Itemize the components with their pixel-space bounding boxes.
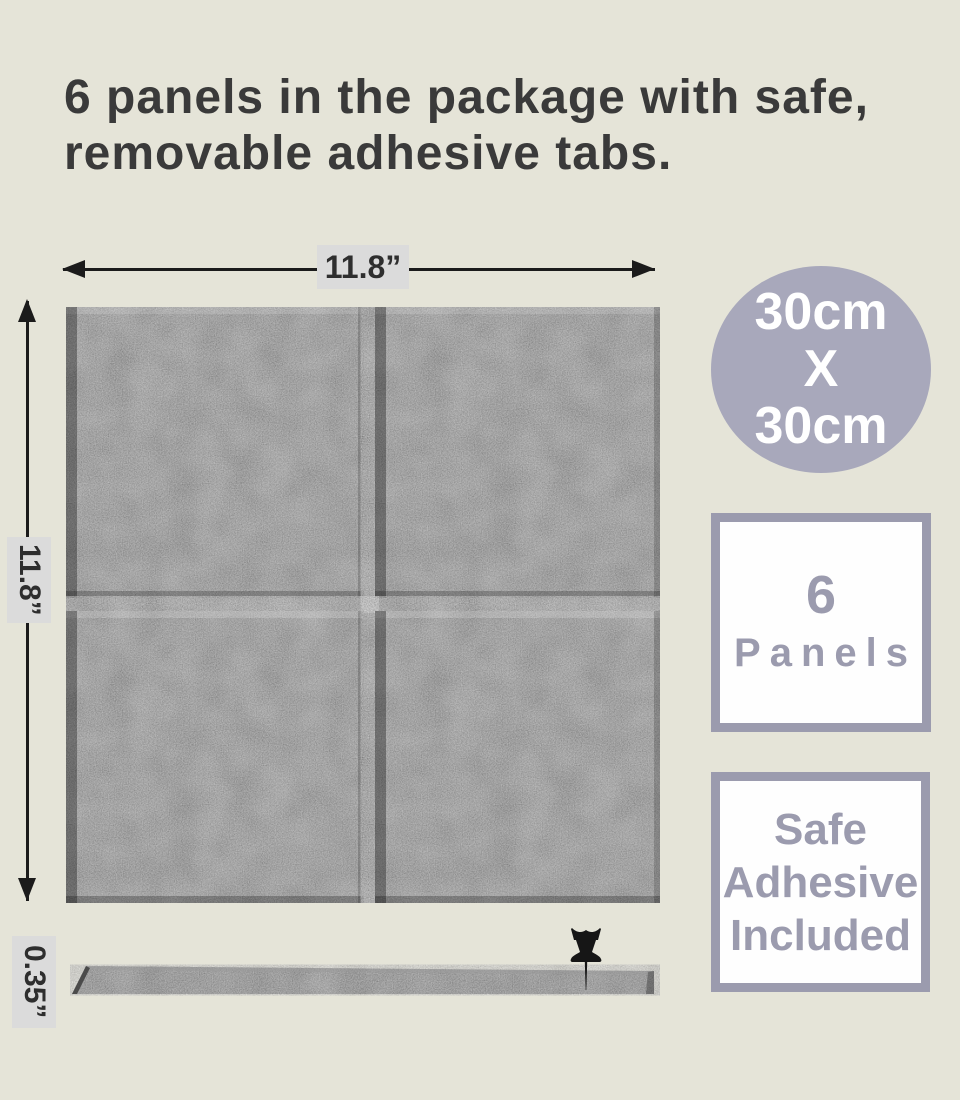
page-title: 6 panels in the package with safe, remov…	[64, 70, 869, 182]
panel-count-badge: 6 Panels	[711, 513, 931, 732]
title-line-1: 6 panels in the package with safe,	[64, 70, 869, 126]
felt-square	[375, 307, 660, 598]
adhesive-line2: Adhesive	[723, 856, 919, 909]
adhesive-line3: Included	[730, 909, 911, 962]
arrowhead-up-icon	[18, 299, 36, 322]
arrowhead-down-icon	[18, 878, 36, 901]
adhesive-line1: Safe	[774, 803, 867, 856]
height-dimension-label: 11.8”	[7, 537, 51, 623]
felt-square	[66, 307, 364, 598]
pushpin-icon	[569, 927, 603, 993]
acoustic-panel-front-view	[66, 307, 660, 903]
product-infographic: 6 panels in the package with safe, remov…	[0, 0, 960, 1100]
panel-count-number: 6	[806, 565, 836, 625]
arrowhead-right-icon	[632, 260, 655, 278]
felt-square	[66, 611, 364, 903]
size-badge-line2: X	[804, 341, 839, 398]
size-badge: 30cm X 30cm	[711, 266, 931, 473]
panel-count-word: Panels	[734, 625, 917, 681]
title-line-2: removable adhesive tabs.	[64, 126, 869, 182]
thickness-dimension-label: 0.35”	[12, 936, 56, 1028]
felt-square	[375, 611, 660, 903]
width-dimension-label: 11.8”	[317, 245, 409, 289]
arrowhead-left-icon	[62, 260, 85, 278]
adhesive-badge: Safe Adhesive Included	[711, 772, 930, 992]
size-badge-line3: 30cm	[755, 398, 888, 455]
size-badge-line1: 30cm	[755, 284, 888, 341]
